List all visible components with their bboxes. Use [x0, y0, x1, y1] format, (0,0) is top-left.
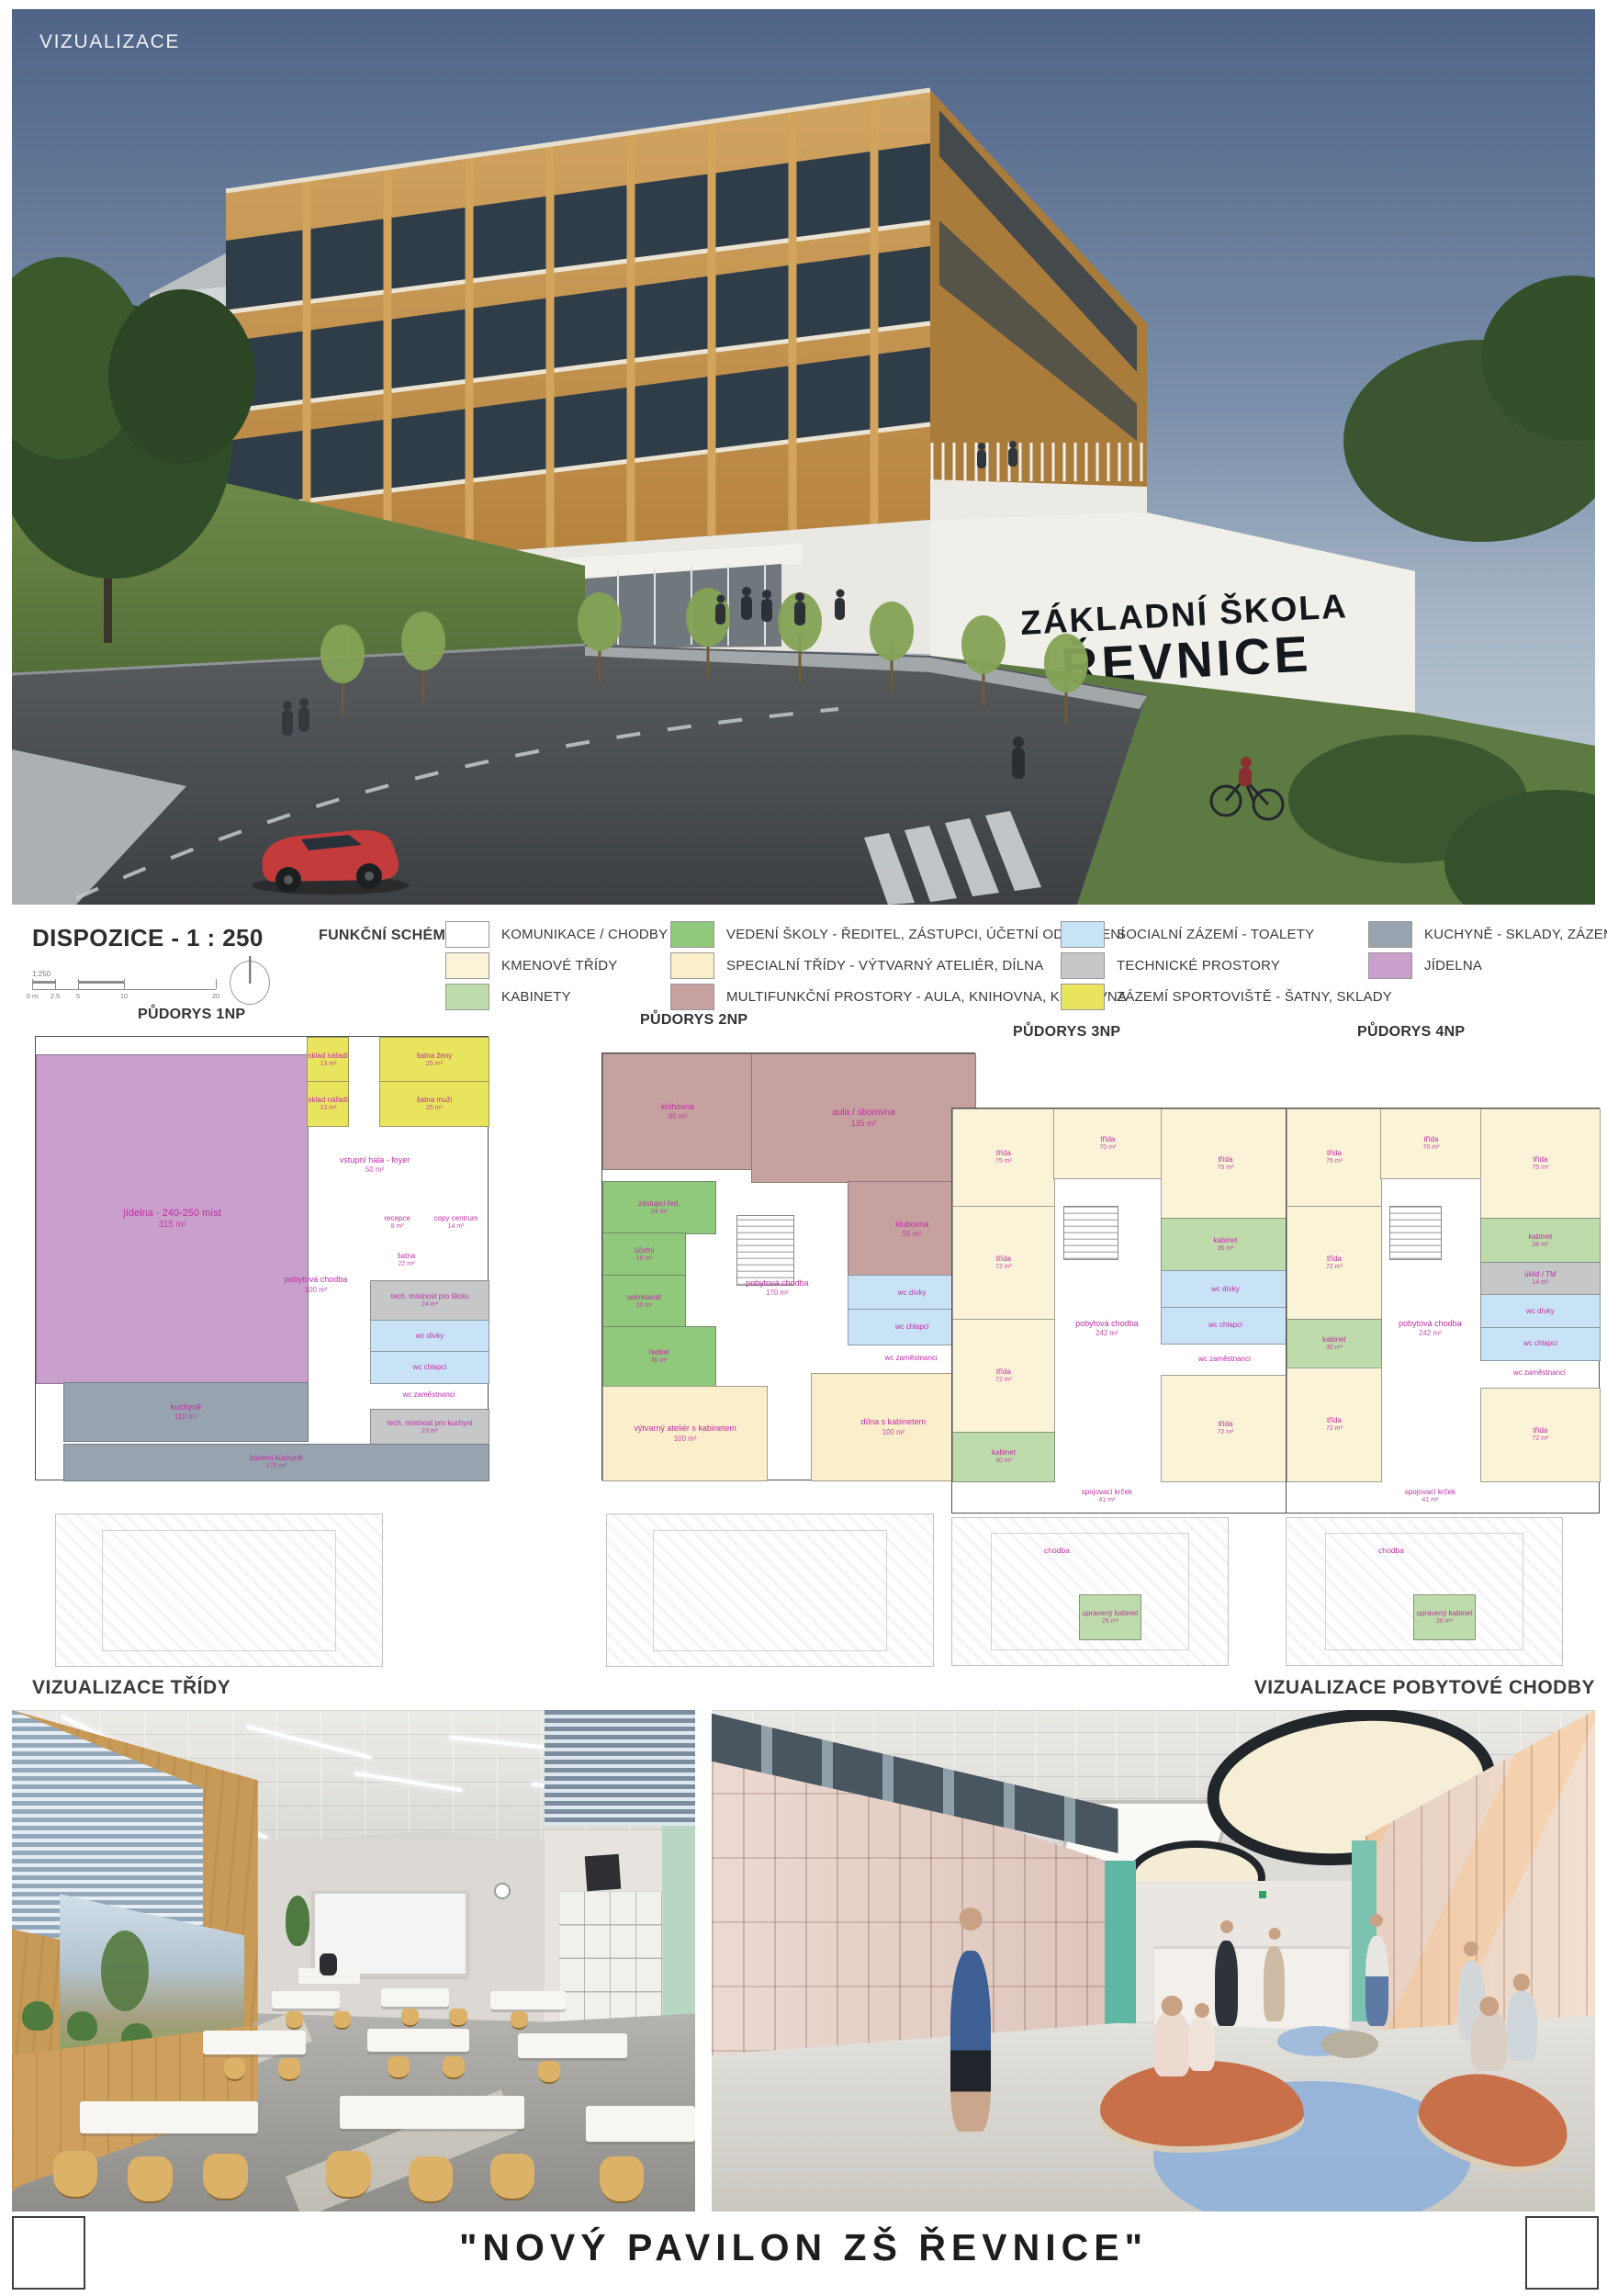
chair — [538, 2061, 560, 2084]
plan-room: copy centrum14 m² — [424, 1205, 488, 1241]
room-label: pobytová chodba242 m² — [1075, 1319, 1139, 1338]
chair — [128, 2156, 172, 2203]
plan-room: zástupci řed.24 m² — [602, 1181, 716, 1234]
room-label: wc dívky — [416, 1332, 444, 1341]
plan-room: třída75 m² — [1161, 1109, 1290, 1220]
legend-swatch — [1368, 952, 1412, 979]
room-label: sklad nářadí13 m² — [309, 1096, 349, 1113]
room-label: copy centrum14 m² — [434, 1214, 478, 1232]
schema-label: FUNKČNÍ SCHÉMA — [319, 928, 456, 944]
existing-building-plan — [606, 1514, 934, 1667]
project-title: "NOVÝ PAVILON ZŠ ŘEVNICE" — [0, 2226, 1607, 2269]
legend-item: KUCHYNĚ - SKLADY, ZÁZEMÍ — [1368, 922, 1607, 947]
legend-item: KABINETY — [445, 985, 668, 1009]
chair — [326, 2151, 370, 2198]
room-area: 14 m² — [434, 1223, 478, 1232]
plan-room: třída70 m² — [1380, 1109, 1482, 1179]
legend-column: SOCIALNÍ ZÁZEMÍ - TOALETYTECHNICKÉ PROST… — [1061, 922, 1392, 1016]
room-area: 41 m² — [1082, 1497, 1132, 1505]
scale-tick-label: 10 — [120, 992, 128, 1000]
scale-tick-label: 20 — [212, 992, 219, 1000]
scale-segment — [32, 981, 55, 984]
legend-column: KUCHYNĚ - SKLADY, ZÁZEMÍJÍDELNA — [1368, 922, 1607, 985]
room-area: 100 m² — [285, 1286, 348, 1295]
chair — [286, 2011, 303, 2031]
plan-room: vstupní hala - foyer50 m² — [316, 1134, 433, 1196]
plan-room: upravený kabinet26 m² — [1413, 1594, 1476, 1640]
room-label: kabinet30 m² — [1322, 1335, 1346, 1353]
exterior-render-graphic: ZÁKLADNÍ ŠKOLA ŘEVNICE — [12, 9, 1595, 905]
dispozice-title: DISPOZICE - 1 : 250 — [32, 924, 264, 952]
plan-room: třída70 m² — [1053, 1109, 1163, 1179]
room-area: 72 m² — [995, 1377, 1012, 1385]
room-area: 26 m² — [1417, 1618, 1473, 1626]
room-area: 72 m² — [1217, 1429, 1233, 1437]
plan-room: třída72 m² — [1161, 1375, 1290, 1481]
chair — [511, 2011, 528, 2031]
plan-room: pobytová chodba242 m² — [1380, 1177, 1480, 1480]
plan-room: ředitel30 m² — [602, 1326, 716, 1388]
legend-item: MULTIFUNKČNÍ PROSTORY - AULA, KNIHOVNA, … — [670, 985, 1127, 1009]
room-area: 20 m² — [627, 1302, 661, 1311]
legend-column: VEDENÍ ŠKOLY - ŘEDITEL, ZÁSTUPCI, ÚČETNÍ… — [670, 922, 1127, 1016]
room-area: 135 m² — [832, 1119, 894, 1129]
plan-room: šatna ženy25 m² — [379, 1037, 489, 1083]
exit-sign — [1259, 1891, 1266, 1898]
room-label: pobytová chodba100 m² — [285, 1275, 348, 1294]
plan-room: wc zaměstnanci — [1161, 1343, 1288, 1375]
plan-room: třída75 m² — [1480, 1109, 1601, 1220]
chair — [490, 2154, 534, 2200]
chair — [333, 2011, 351, 2031]
room-area: 41 m² — [1405, 1497, 1455, 1505]
room-area: 26 m² — [1083, 1618, 1139, 1626]
room-label: třída72 m² — [995, 1367, 1012, 1385]
room-label: zástupci řed.24 m² — [638, 1199, 680, 1217]
chair — [203, 2154, 247, 2200]
corridor-visualization — [712, 1710, 1595, 2212]
room-label: wc chlapci — [1523, 1339, 1557, 1348]
room-area: 14 m² — [1524, 1279, 1556, 1288]
plan-room: sekretariát20 m² — [602, 1275, 686, 1328]
table — [367, 2029, 470, 2052]
legend-swatch — [445, 952, 489, 979]
north-arrow-icon — [230, 961, 270, 1005]
room-area: 24 m² — [391, 1301, 468, 1310]
legend-label: JÍDELNA — [1424, 958, 1482, 974]
plan-room: třída72 m² — [952, 1319, 1055, 1434]
room-label: šatna muži25 m² — [417, 1096, 453, 1113]
plan-room: recepce8 m² — [370, 1205, 424, 1241]
room-area: 72 m² — [995, 1264, 1012, 1272]
room-label: třída75 m² — [1326, 1149, 1343, 1166]
plan-room: úklid / TM14 m² — [1480, 1262, 1601, 1296]
north-needle — [249, 956, 251, 984]
plan-room: sklad nářadí13 m² — [307, 1081, 349, 1127]
table — [381, 1988, 449, 2007]
room-area: 50 m² — [340, 1165, 410, 1175]
hero-label: VIZUALIZACE — [39, 31, 180, 53]
plan-room: jídelna - 240-250 míst315 m² — [36, 1054, 309, 1384]
room-area: 72 m² — [1326, 1264, 1343, 1272]
legend-label: KMENOVÉ TŘÍDY — [501, 958, 618, 974]
room-label: třída72 m² — [1326, 1416, 1343, 1434]
plan-room: pobytová chodba100 m² — [271, 1214, 361, 1356]
plan-room: wc dívky — [1480, 1294, 1601, 1328]
room-area: 242 m² — [1399, 1329, 1462, 1338]
room-label: třída75 m² — [1532, 1155, 1548, 1173]
legend-swatch — [1061, 984, 1105, 1010]
legend-label: SPECIALNÍ TŘÍDY - VÝTVARNÝ ATELIÉR, DÍLN… — [726, 958, 1044, 974]
room-area: 75 m² — [1326, 1158, 1343, 1166]
room-area: 25 m² — [417, 1105, 453, 1113]
room-label: třída72 m² — [1326, 1255, 1343, 1272]
room-area: 75 m² — [1217, 1165, 1233, 1173]
room-label: klubovna55 m² — [895, 1220, 928, 1239]
scale-tick — [216, 979, 217, 989]
plan-room: zázemí kuchyně170 m² — [63, 1444, 489, 1481]
chair — [278, 2058, 300, 2081]
plan-title-2np: PŮDORYS 2NP — [640, 1012, 747, 1029]
room-label: úklid / TM14 m² — [1524, 1270, 1556, 1288]
plan-room: kuchyně110 m² — [63, 1382, 309, 1442]
room-label: spojovací krček41 m² — [1405, 1488, 1455, 1505]
legend-label: KOMUNIKACE / CHODBY — [501, 927, 668, 942]
room-label: třída72 m² — [1532, 1426, 1548, 1444]
room-label: šatna22 m² — [398, 1252, 416, 1269]
room-area: 22 m² — [398, 1261, 416, 1269]
room-label: pobytová chodba242 m² — [1399, 1319, 1462, 1338]
existing-building-plan — [55, 1514, 383, 1667]
chair — [224, 2058, 246, 2081]
plan-room: tech. místnost pro školu24 m² — [370, 1280, 489, 1322]
scale-tick — [78, 979, 79, 989]
scale-bar: 1:250 0 m2.551020 — [32, 970, 216, 1003]
room-label: třída75 m² — [995, 1149, 1012, 1166]
plan-room: pobytová chodba170 m² — [722, 1207, 834, 1368]
legend-swatch — [670, 984, 714, 1010]
table — [340, 2096, 524, 2128]
legend-item: KMENOVÉ TŘÍDY — [445, 953, 668, 978]
room-label: vstupní hala - foyer50 m² — [340, 1155, 410, 1175]
plan-room: spojovací krček41 m² — [1380, 1480, 1480, 1513]
scale-tick-label: 5 — [76, 992, 80, 1000]
presentation-board: ZÁKLADNÍ ŠKOLA ŘEVNICE — [0, 0, 1607, 2296]
plan-room: sklad nářadí13 m² — [307, 1037, 349, 1083]
room-area: 30 m² — [649, 1357, 669, 1366]
plan-room: třída75 m² — [1287, 1109, 1382, 1208]
plan-room: spojovací krček41 m² — [1053, 1480, 1161, 1513]
chair — [600, 2156, 644, 2203]
room-label: wc zaměstnanci — [885, 1354, 938, 1363]
legend-label: ZÁZEMÍ SPORTOVIŠTĚ - ŠATNY, SKLADY — [1117, 989, 1392, 1005]
scale-tick — [55, 979, 56, 989]
scale-tick — [32, 979, 33, 989]
plan-room: wc chlapci — [1161, 1307, 1290, 1345]
legend-swatch — [1368, 921, 1412, 948]
room-label: účetní16 m² — [635, 1246, 655, 1264]
plan-room: kabinet30 m² — [952, 1432, 1055, 1482]
room-area: 8 m² — [384, 1223, 410, 1232]
person — [950, 1951, 991, 2132]
scale-tick-label: 0 m — [27, 992, 39, 1000]
floor-plan-1np: jídelna - 240-250 míst315 m²sklad nářadí… — [35, 1036, 489, 1480]
room-area: 70 m² — [1099, 1144, 1116, 1153]
plan-room: výtvarný ateliér s kabinetem100 m² — [602, 1386, 768, 1481]
room-label: wc dívky — [1211, 1285, 1240, 1294]
room-label: třída75 m² — [1217, 1155, 1233, 1173]
scale-ratio: 1:250 — [32, 970, 51, 978]
room-label: aula / sborovna135 m² — [832, 1108, 894, 1129]
plan-room: wc chlapci — [370, 1351, 489, 1384]
room-area: 24 m² — [638, 1209, 680, 1217]
legend-swatch — [1061, 952, 1105, 979]
plan-room: wc zaměstnanci — [370, 1382, 488, 1409]
room-area: 315 m² — [123, 1220, 220, 1231]
legend-item: SOCIALNÍ ZÁZEMÍ - TOALETY — [1061, 922, 1392, 947]
room-area: 170 m² — [746, 1289, 809, 1298]
room-label: kabinet36 m² — [1214, 1236, 1238, 1254]
right-window-band — [545, 1710, 695, 1826]
room-area: 28 m² — [1528, 1242, 1552, 1250]
plan-room: tech. místnost pro kuchyni23 m² — [370, 1409, 489, 1446]
plan-room: účetní16 m² — [602, 1232, 686, 1277]
plan-room: pobytová chodba242 m² — [1053, 1177, 1161, 1480]
sill-plant — [67, 2011, 97, 2042]
room-label: sklad nářadí13 m² — [309, 1052, 349, 1069]
room-label: spojovací krček41 m² — [1082, 1488, 1132, 1505]
classroom-visualization — [12, 1710, 695, 2212]
room-area: 13 m² — [309, 1061, 349, 1069]
room-label: wc zaměstnanci — [1198, 1355, 1251, 1364]
person — [1215, 1941, 1238, 2026]
floor-plan-2np: knihovna85 m²aula / sborovna135 m²klubov… — [601, 1052, 975, 1480]
plan-room: wc zaměstnanci — [1480, 1359, 1599, 1388]
chair — [388, 2056, 410, 2079]
annex-label: chodba — [1044, 1546, 1070, 1555]
room-label: knihovna85 m² — [661, 1102, 694, 1121]
room-label: wc chlapci — [1208, 1321, 1242, 1330]
room-area: 72 m² — [1326, 1425, 1343, 1434]
plan-room: aula / sborovna135 m² — [751, 1053, 976, 1183]
room-area: 75 m² — [995, 1158, 1012, 1166]
corridor-viz-label: VIZUALIZACE POBYTOVÉ CHODBY — [1254, 1677, 1595, 1699]
plan-title-4np: PŮDORYS 4NP — [1357, 1024, 1465, 1041]
table — [80, 2101, 257, 2133]
plan-room: upravený kabinet26 m² — [1079, 1594, 1141, 1640]
room-area: 75 m² — [1532, 1165, 1548, 1173]
table — [272, 1991, 340, 2009]
plan-room: šatna muži25 m² — [379, 1081, 489, 1127]
room-label: ředitel30 m² — [649, 1348, 669, 1366]
plan-room: šatna22 m² — [370, 1241, 443, 1280]
legend-label: KABINETY — [501, 989, 571, 1005]
plant — [286, 1896, 310, 1946]
legend-swatch — [445, 921, 489, 948]
annex-label: chodba — [1378, 1546, 1404, 1555]
room-label: pobytová chodba170 m² — [746, 1278, 809, 1298]
room-area: 72 m² — [1532, 1435, 1548, 1444]
room-area: 55 m² — [895, 1230, 928, 1239]
room-label: wc chlapci — [413, 1363, 447, 1372]
room-label: třída70 m² — [1099, 1135, 1116, 1153]
legend-swatch — [1061, 921, 1105, 948]
legend-swatch — [670, 921, 714, 948]
table — [518, 2033, 627, 2058]
room-label: třída72 m² — [1217, 1420, 1233, 1437]
legend-item: TECHNICKÉ PROSTORY — [1061, 953, 1392, 978]
classroom-viz-label: VIZUALIZACE TŘÍDY — [32, 1677, 230, 1699]
room-label: upravený kabinet26 m² — [1083, 1609, 1139, 1626]
legend-item: ZÁZEMÍ SPORTOVIŠTĚ - ŠATNY, SKLADY — [1061, 985, 1392, 1009]
person-seated — [1507, 1991, 1537, 2061]
room-area: 110 m² — [171, 1412, 202, 1422]
window-tree — [101, 1930, 149, 2010]
room-label: šatna ženy25 m² — [417, 1052, 453, 1069]
legend-column: KOMUNIKACE / CHODBYKMENOVÉ TŘÍDYKABINETY — [445, 922, 668, 1016]
table — [586, 2106, 695, 2141]
room-label: tech. místnost pro školu24 m² — [391, 1292, 468, 1310]
table — [203, 2031, 306, 2054]
table — [490, 1991, 566, 2010]
room-area: 85 m² — [661, 1112, 694, 1121]
room-area: 70 m² — [1422, 1144, 1439, 1153]
legend-item: SPECIALNÍ TŘÍDY - VÝTVARNÝ ATELIÉR, DÍLN… — [670, 953, 1127, 978]
scale-tick-label: 2.5 — [51, 992, 60, 1000]
plan-room: wc chlapci — [1480, 1327, 1601, 1361]
plan-room: kabinet28 m² — [1480, 1218, 1601, 1264]
floor-plan-3np: třída75 m²třída70 m²třída75 m²třída72 m²… — [951, 1108, 1289, 1514]
room-area: 36 m² — [1214, 1245, 1238, 1254]
room-label: wc zaměstnanci — [403, 1390, 455, 1400]
wall-clock-icon — [494, 1883, 511, 1899]
shelf-unit — [558, 1891, 663, 2033]
room-label: wc dívky — [1526, 1307, 1555, 1316]
plan-room: třída72 m² — [1480, 1388, 1601, 1482]
chair — [53, 2151, 97, 2198]
plan-title-1np: PŮDORYS 1NP — [138, 1007, 245, 1023]
teal-accent — [1105, 1861, 1136, 2032]
room-area: 16 m² — [635, 1255, 655, 1264]
person-child — [1188, 2016, 1215, 2071]
chair — [443, 2056, 465, 2079]
room-area: 13 m² — [309, 1105, 349, 1113]
plan-room: třída72 m² — [1287, 1367, 1382, 1482]
scale-tick — [124, 979, 125, 989]
room-label: wc chlapci — [895, 1322, 929, 1332]
plan-room: kabinet30 m² — [1287, 1319, 1382, 1369]
room-label: sekretariát20 m² — [627, 1293, 661, 1311]
sill-plant — [22, 2001, 52, 2032]
room-area: 25 m² — [417, 1061, 453, 1069]
plan-title-3np: PŮDORYS 3NP — [1013, 1024, 1120, 1041]
teacher-chair — [320, 1953, 337, 1976]
person-seated — [1153, 2011, 1190, 2077]
room-area: 170 m² — [250, 1463, 303, 1471]
room-area: 30 m² — [992, 1458, 1016, 1466]
plan-room: wc dívky — [1161, 1270, 1290, 1309]
room-label: jídelna - 240-250 míst315 m² — [123, 1208, 220, 1232]
room-area: 30 m² — [1322, 1345, 1346, 1353]
person — [1264, 1946, 1285, 2021]
plan-room: knihovna85 m² — [602, 1053, 753, 1170]
existing-building-plan: upravený kabinet26 m²chodba — [951, 1517, 1229, 1666]
plan-room: třída72 m² — [1287, 1206, 1382, 1321]
legend-item: JÍDELNA — [1368, 953, 1607, 978]
scale-segment — [78, 981, 124, 984]
room-label: kuchyně110 m² — [171, 1402, 202, 1422]
legend-label: SOCIALNÍ ZÁZEMÍ - TOALETY — [1117, 927, 1314, 942]
room-label: kabinet30 m² — [992, 1448, 1016, 1466]
room-area: 100 m² — [634, 1435, 736, 1444]
plan-room: třída75 m² — [952, 1109, 1055, 1208]
chair — [449, 2009, 466, 2028]
room-label: zázemí kuchyně170 m² — [250, 1454, 303, 1471]
room-label: třída72 m² — [995, 1255, 1012, 1272]
room-label: dílna s kabinetem100 m² — [861, 1417, 927, 1436]
room-area: 23 m² — [388, 1428, 473, 1436]
exterior-visualization: ZÁKLADNÍ ŠKOLA ŘEVNICE — [12, 9, 1595, 905]
floor-plan-4np: třída75 m²třída70 m²třída75 m²třída72 m²… — [1286, 1108, 1600, 1514]
room-label: třída70 m² — [1422, 1135, 1439, 1153]
existing-building-plan: upravený kabinet26 m²chodba — [1286, 1517, 1563, 1666]
artwork — [585, 1854, 622, 1892]
room-label: wc zaměstnanci — [1513, 1368, 1566, 1378]
legend-swatch — [670, 952, 714, 979]
room-label: upravený kabinet26 m² — [1417, 1609, 1473, 1626]
room-label: tech. místnost pro kuchyni23 m² — [388, 1419, 473, 1436]
plan-room: wc dívky — [370, 1320, 489, 1353]
room-area: 242 m² — [1075, 1329, 1139, 1338]
room-area: 100 m² — [861, 1428, 927, 1437]
room-label: výtvarný ateliér s kabinetem100 m² — [634, 1424, 736, 1443]
room-label: wc dívky — [898, 1289, 927, 1298]
room-label: kabinet28 m² — [1528, 1232, 1552, 1250]
legend-swatch — [445, 984, 489, 1010]
legend-label: KUCHYNĚ - SKLADY, ZÁZEMÍ — [1424, 927, 1607, 942]
legend-label: TECHNICKÉ PROSTORY — [1117, 958, 1280, 974]
plan-room: třída72 m² — [952, 1206, 1055, 1321]
person-seated — [1471, 2011, 1506, 2072]
legend-item: VEDENÍ ŠKOLY - ŘEDITEL, ZÁSTUPCI, ÚČETNÍ… — [670, 922, 1127, 947]
right-pedestrian — [1012, 737, 1025, 779]
person — [1365, 1936, 1388, 2026]
legend-item: KOMUNIKACE / CHODBY — [445, 922, 668, 947]
plan-room: kabinet36 m² — [1161, 1218, 1290, 1272]
room-label: recepce8 m² — [384, 1214, 410, 1232]
chair — [409, 2156, 453, 2203]
